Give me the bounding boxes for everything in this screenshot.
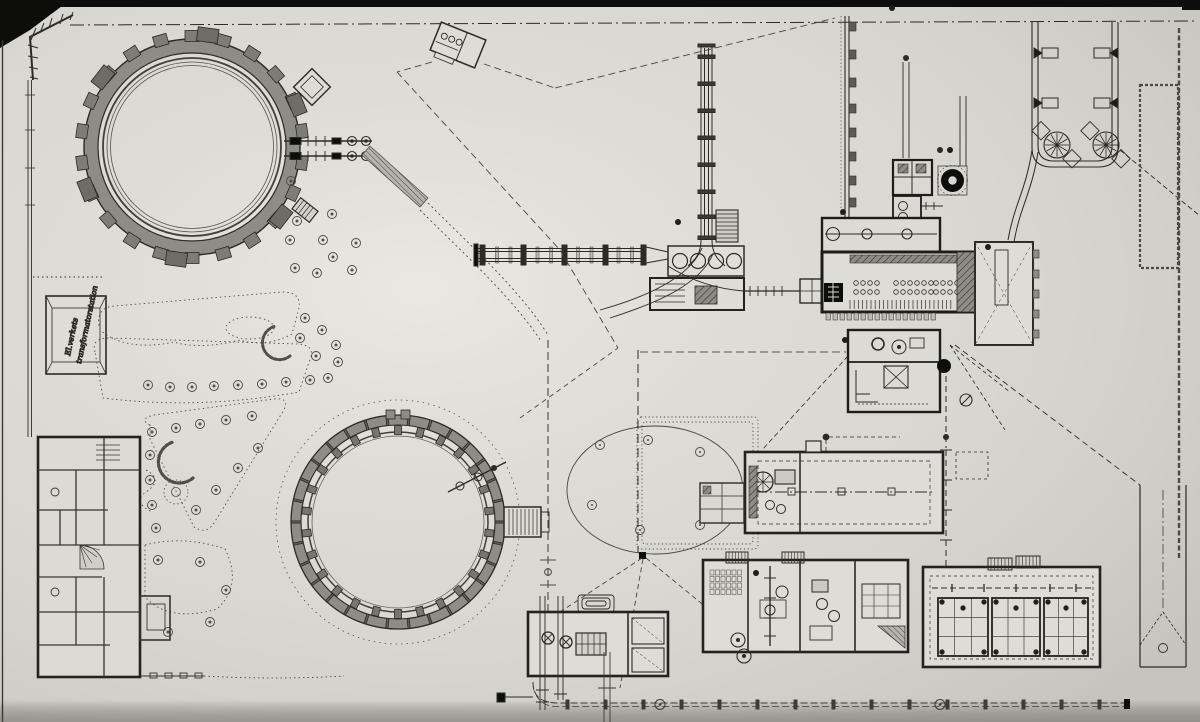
storehouse-shed: [700, 483, 744, 523]
pipe-stair: [716, 210, 738, 242]
transformer-station: El.verkets transformatorstation: [46, 285, 106, 374]
purifier-house: [923, 556, 1100, 667]
engine-house: [703, 552, 908, 663]
scanned-site-plan: El.verkets transformatorstation: [0, 0, 1200, 722]
site-plan-drawing: El.verkets transformatorstation: [0, 0, 1200, 722]
